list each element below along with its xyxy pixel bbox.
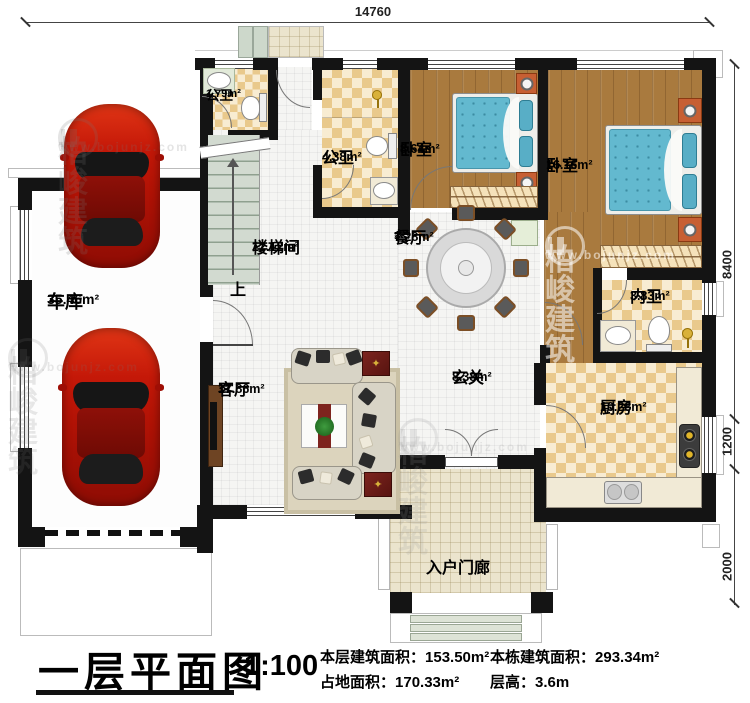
window bbox=[704, 417, 713, 473]
porch-pillar bbox=[390, 592, 412, 613]
rear-step bbox=[253, 26, 268, 58]
door-leaf bbox=[213, 344, 253, 346]
sofa-cushion bbox=[316, 350, 330, 363]
car-mirror bbox=[60, 154, 69, 161]
dimension-top-width: 14760 bbox=[340, 4, 406, 19]
wall bbox=[180, 527, 213, 547]
wall bbox=[213, 505, 247, 519]
dining-chair bbox=[457, 315, 475, 331]
nightstand bbox=[516, 73, 537, 94]
rear-step bbox=[238, 26, 253, 58]
stat-footprint: 占地面积：170.33m² bbox=[320, 671, 459, 692]
wall bbox=[540, 345, 550, 363]
wall bbox=[313, 58, 322, 100]
bed bbox=[452, 93, 538, 173]
star-icon: ✦ bbox=[373, 479, 382, 491]
nightstand-lamp bbox=[684, 223, 697, 236]
stat-floor-area: 本层建筑面积：153.50m² bbox=[320, 646, 489, 667]
sink-basin bbox=[607, 484, 622, 500]
plant bbox=[315, 417, 334, 436]
sofa-pillow bbox=[332, 352, 346, 366]
plan-title: 一层平面图 bbox=[38, 638, 268, 698]
garage-door-dashed bbox=[45, 530, 180, 536]
wall bbox=[18, 527, 45, 547]
dimension-line-top bbox=[25, 22, 710, 23]
rear-stoop bbox=[268, 26, 324, 58]
pillow bbox=[519, 100, 533, 131]
nightstand bbox=[678, 217, 702, 242]
window bbox=[20, 210, 29, 280]
window-sill-east1 bbox=[716, 281, 724, 317]
tv bbox=[210, 402, 217, 450]
dimension-right-lower: 2000 bbox=[720, 547, 735, 587]
stair-arrow bbox=[227, 158, 239, 167]
front-step bbox=[410, 615, 522, 623]
drain-stem bbox=[687, 338, 689, 348]
wall bbox=[627, 268, 716, 280]
dining-chair bbox=[403, 259, 419, 277]
stair-direction-line bbox=[232, 160, 234, 275]
car bbox=[64, 104, 160, 268]
plan-scale: 1:100 bbox=[244, 650, 318, 683]
car bbox=[62, 328, 160, 506]
front-step bbox=[410, 633, 522, 641]
wall bbox=[398, 58, 410, 210]
dining-chair bbox=[457, 205, 475, 221]
mattress bbox=[609, 129, 671, 211]
wardrobe bbox=[600, 245, 702, 268]
accent-cabinet: ✦ bbox=[362, 351, 390, 376]
front-step bbox=[410, 624, 522, 632]
mattress bbox=[456, 97, 510, 169]
car-roof bbox=[79, 176, 145, 222]
window bbox=[577, 60, 684, 69]
floor-plan: 上 bbox=[0, 0, 750, 703]
porch-ledge-east bbox=[546, 524, 558, 590]
wall bbox=[393, 455, 445, 469]
nightstand-lamp bbox=[684, 104, 697, 117]
nightstand bbox=[678, 98, 702, 123]
side-cabinet bbox=[511, 220, 538, 246]
sink-basin bbox=[624, 484, 639, 500]
car-rear-window bbox=[79, 454, 143, 484]
sofa-cushion bbox=[361, 413, 377, 428]
car-rear-window bbox=[81, 218, 143, 246]
wall bbox=[18, 280, 32, 367]
title-underline bbox=[36, 690, 234, 695]
toilet bbox=[366, 136, 388, 156]
wall bbox=[534, 508, 716, 522]
window-sill-west1 bbox=[10, 206, 20, 284]
stove-burner bbox=[683, 448, 696, 461]
driveway bbox=[20, 548, 212, 636]
pillow bbox=[682, 174, 697, 209]
sink bbox=[207, 72, 231, 89]
toilet-tank bbox=[259, 93, 267, 122]
sink bbox=[373, 182, 395, 199]
wall bbox=[538, 58, 548, 218]
car-mirror bbox=[155, 384, 164, 391]
window bbox=[20, 367, 29, 448]
nightstand-lamp bbox=[520, 77, 533, 90]
pillow bbox=[682, 133, 697, 168]
dimension-right-middle: 1200 bbox=[720, 422, 735, 462]
window bbox=[704, 283, 713, 315]
bed bbox=[605, 125, 702, 215]
car-mirror bbox=[58, 384, 67, 391]
car-roof bbox=[77, 408, 145, 458]
sink bbox=[605, 326, 631, 345]
window bbox=[428, 60, 515, 69]
pillow bbox=[519, 136, 533, 167]
dimension-right-upper: 8400 bbox=[720, 245, 735, 285]
stat-story-height: 层高：3.6m bbox=[490, 671, 569, 692]
star-icon: ✦ bbox=[371, 358, 380, 370]
toilet-tank bbox=[646, 344, 672, 352]
wall bbox=[18, 178, 32, 210]
stove-burner bbox=[683, 429, 696, 442]
corner-ledge-se bbox=[702, 524, 720, 548]
window-sill-west2 bbox=[10, 363, 20, 452]
wall bbox=[593, 352, 716, 363]
wall bbox=[313, 207, 410, 218]
drain-stem bbox=[377, 99, 379, 108]
car-mirror bbox=[155, 154, 164, 161]
sofa-pillow bbox=[319, 471, 333, 485]
wall bbox=[160, 178, 213, 191]
stat-building-area: 本栋建筑面积：293.34m² bbox=[490, 646, 659, 667]
wall bbox=[313, 165, 322, 218]
accent-cabinet: ✦ bbox=[364, 472, 392, 497]
dining-chair bbox=[513, 259, 529, 277]
wall bbox=[702, 315, 716, 417]
porch-pillar bbox=[531, 592, 553, 613]
toilet-tank bbox=[388, 133, 397, 159]
dimension-line-right bbox=[734, 65, 735, 605]
toilet bbox=[241, 96, 260, 120]
dining-table-center bbox=[458, 260, 474, 276]
stair-up-label: 上 bbox=[226, 282, 250, 300]
wall bbox=[534, 363, 546, 405]
wall bbox=[702, 58, 716, 283]
toilet bbox=[648, 316, 670, 344]
bath-divider-line bbox=[322, 117, 398, 118]
window bbox=[343, 60, 377, 69]
entry-door-threshold bbox=[445, 457, 498, 467]
